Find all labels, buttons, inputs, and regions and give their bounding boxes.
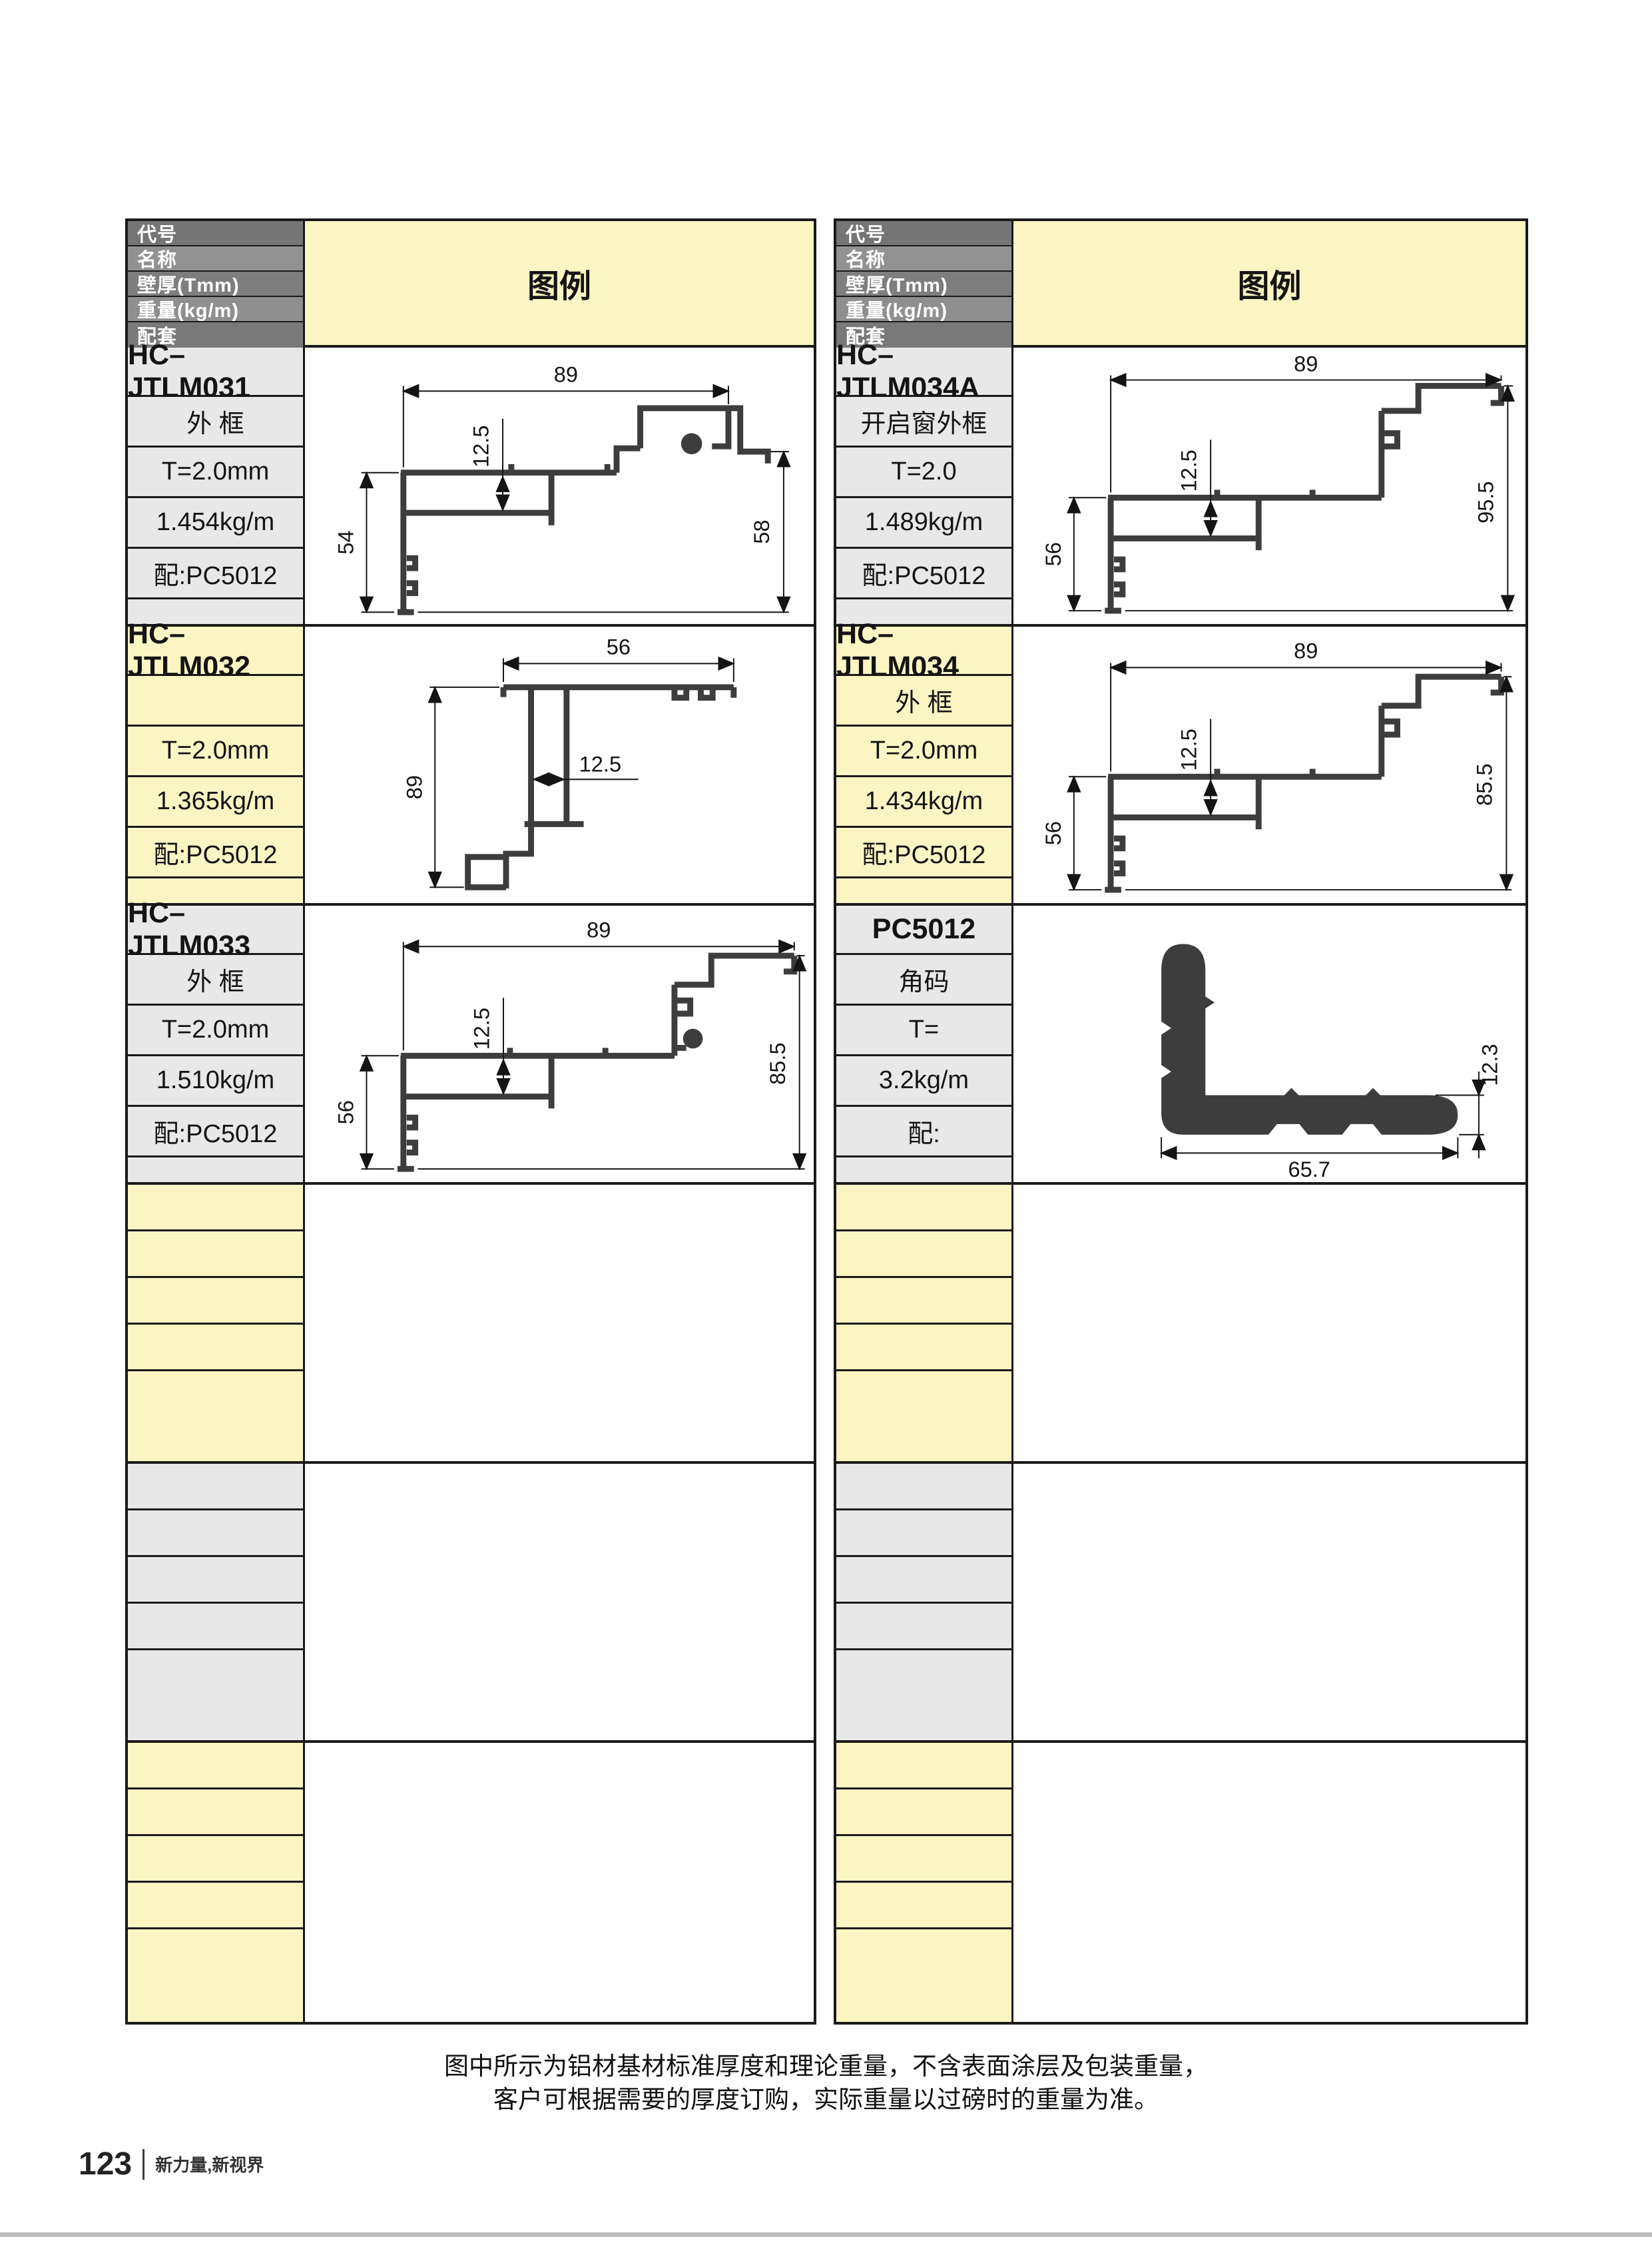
header-label-column: 代号 名称 壁厚(Tmm) 重量(kg/m) 配套 — [128, 221, 305, 345]
product-name — [128, 676, 303, 727]
product-thickness: T=2.0 — [836, 448, 1011, 498]
dim-left-label: 54 — [334, 530, 358, 554]
figure-cell-empty — [1013, 1185, 1525, 1461]
product-code: HC–JTLM032 — [128, 627, 303, 676]
empty-block — [836, 1743, 1525, 2022]
header-label-thickness: 壁厚(Tmm) — [128, 272, 303, 297]
footer-slogan: 新力量,新视界 — [155, 2152, 264, 2176]
header-label-name: 名称 — [128, 246, 303, 272]
dim-left-label: 56 — [1041, 542, 1065, 566]
table-header-left: 代号 名称 壁厚(Tmm) 重量(kg/m) 配套 图例 — [128, 221, 814, 348]
empty-block — [836, 1464, 1525, 1743]
figure-cell: 89 12.5 56 95.5 — [1013, 348, 1525, 624]
product-thickness: T=2.0mm — [128, 727, 303, 777]
legend-title: 图例 — [305, 221, 814, 345]
dim-right-label: 58 — [749, 520, 774, 544]
product-thickness: T=2.0mm — [128, 448, 303, 498]
legend-header-cell: 图例 — [1013, 221, 1525, 345]
product-labels: HC–JTLM033 外 框 T=2.0mm 1.510kg/m 配:PC501… — [128, 906, 305, 1182]
product-code: PC5012 — [836, 906, 1011, 955]
product-thickness: T=2.0mm — [128, 1006, 303, 1056]
product-label-filler — [836, 878, 1011, 903]
product-weight: 1.454kg/m — [128, 498, 303, 549]
empty-block — [128, 1743, 814, 2022]
product-code: HC–JTLM031 — [128, 348, 303, 397]
table-header-right: 代号 名称 壁厚(Tmm) 重量(kg/m) 配套 图例 — [836, 221, 1525, 348]
product-accessory: 配:PC5012 — [128, 828, 303, 878]
legend-header-cell: 图例 — [305, 221, 814, 345]
product-code: HC–JTLM034A — [836, 348, 1011, 397]
header-label-column: 代号 名称 壁厚(Tmm) 重量(kg/m) 配套 — [836, 221, 1013, 345]
legend-title: 图例 — [1013, 221, 1525, 345]
product-thickness: T=2.0mm — [836, 727, 1011, 777]
technical-drawing-jtlm031: 89 12.5 54 58 — [305, 348, 814, 624]
header-label-weight: 重量(kg/m) — [836, 297, 1011, 322]
product-block-jtlm034: HC–JTLM034 外 框 T=2.0mm 1.434kg/m 配:PC501… — [836, 627, 1525, 906]
empty-labels — [836, 1743, 1013, 2022]
empty-labels — [128, 1743, 305, 2022]
technical-drawing-pc5012: 65.7 12.3 — [1013, 906, 1525, 1182]
figure-cell: 65.7 12.3 — [1013, 906, 1525, 1182]
dim-right-label: 95.5 — [1474, 481, 1498, 523]
header-label-code: 代号 — [836, 221, 1011, 246]
dim-top-label: 89 — [587, 917, 611, 942]
dim-right-label: 85.5 — [765, 1042, 790, 1084]
product-block-jtlm034a: HC–JTLM034A 开启窗外框 T=2.0 1.489kg/m 配:PC50… — [836, 348, 1525, 627]
product-block-jtlm031: HC–JTLM031 外 框 T=2.0mm 1.454kg/m 配:PC501… — [128, 348, 814, 627]
product-accessory: 配:PC5012 — [128, 549, 303, 599]
product-name: 外 框 — [128, 955, 303, 1006]
figure-cell: 89 12.5 56 85.5 — [1013, 627, 1525, 903]
product-code: HC–JTLM034 — [836, 627, 1011, 676]
empty-labels — [836, 1464, 1013, 1740]
empty-block — [836, 1185, 1525, 1464]
header-label-thickness: 壁厚(Tmm) — [836, 272, 1011, 297]
product-block-pc5012: PC5012 角码 T= 3.2kg/m 配: — [836, 906, 1525, 1185]
dim-left-label: 89 — [402, 775, 426, 799]
product-accessory: 配: — [836, 1107, 1011, 1157]
dim-left-label: 56 — [334, 1100, 358, 1124]
product-accessory: 配:PC5012 — [128, 1107, 303, 1157]
product-name: 外 框 — [128, 397, 303, 448]
empty-labels — [836, 1185, 1013, 1461]
figure-cell-empty — [305, 1743, 814, 2022]
dim-right-label: 12.3 — [1478, 1044, 1502, 1086]
dim-top-label: 89 — [1294, 639, 1318, 663]
empty-labels — [128, 1464, 305, 1740]
figure-cell-empty — [1013, 1743, 1525, 2022]
technical-drawing-jtlm034: 89 12.5 56 85.5 — [1013, 627, 1525, 903]
product-name: 外 框 — [836, 676, 1011, 727]
figure-cell-empty — [305, 1185, 814, 1461]
profile-table-right: 代号 名称 壁厚(Tmm) 重量(kg/m) 配套 图例 HC–JTLM034A… — [834, 218, 1528, 2025]
dim-inner-label: 12.5 — [579, 751, 621, 776]
dim-right-label: 85.5 — [1473, 763, 1497, 805]
figure-cell: 89 12.5 56 85.5 — [305, 906, 814, 1182]
bottom-edge-bar — [0, 2232, 1652, 2237]
header-label-name: 名称 — [836, 246, 1011, 272]
footer-note-line1: 图中所示为铝材基材标准厚度和理论重量，不含表面涂层及包装重量， — [0, 2046, 1652, 2082]
product-accessory: 配:PC5012 — [836, 549, 1011, 599]
empty-labels — [128, 1185, 305, 1461]
product-label-filler — [128, 1157, 303, 1182]
product-label-filler — [836, 1157, 1011, 1182]
dim-inner-label: 12.5 — [1177, 729, 1201, 771]
product-labels: HC–JTLM032 T=2.0mm 1.365kg/m 配:PC5012 — [128, 627, 305, 903]
product-code: HC–JTLM033 — [128, 906, 303, 955]
page-footer: 123 新力量,新视界 — [79, 2146, 264, 2182]
header-label-code: 代号 — [128, 221, 303, 246]
dim-top-label: 56 — [607, 635, 631, 659]
product-weight: 1.510kg/m — [128, 1056, 303, 1107]
catalog-page: 代号 名称 壁厚(Tmm) 重量(kg/m) 配套 图例 HC–JTLM031 … — [0, 0, 1652, 2241]
dim-left-label: 56 — [1041, 821, 1065, 845]
product-block-jtlm033: HC–JTLM033 外 框 T=2.0mm 1.510kg/m 配:PC501… — [128, 906, 814, 1185]
page-number: 123 — [79, 2146, 132, 2182]
product-thickness: T= — [836, 1006, 1011, 1056]
empty-block — [128, 1185, 814, 1464]
product-accessory: 配:PC5012 — [836, 828, 1011, 878]
product-weight: 3.2kg/m — [836, 1056, 1011, 1107]
product-labels: PC5012 角码 T= 3.2kg/m 配: — [836, 906, 1013, 1182]
dim-top-label: 89 — [554, 362, 578, 386]
product-labels: HC–JTLM034 外 框 T=2.0mm 1.434kg/m 配:PC501… — [836, 627, 1013, 903]
profile-table-left: 代号 名称 壁厚(Tmm) 重量(kg/m) 配套 图例 HC–JTLM031 … — [125, 218, 816, 2025]
product-labels: HC–JTLM031 外 框 T=2.0mm 1.454kg/m 配:PC501… — [128, 348, 305, 624]
technical-drawing-jtlm032: 56 89 12.5 — [305, 627, 814, 903]
footer-divider — [142, 2149, 144, 2180]
dim-inner-label: 12.5 — [469, 1008, 493, 1050]
dim-inner-label: 12.5 — [1177, 450, 1201, 491]
product-weight: 1.489kg/m — [836, 498, 1011, 549]
empty-block — [128, 1464, 814, 1743]
product-name: 开启窗外框 — [836, 397, 1011, 448]
product-weight: 1.365kg/m — [128, 777, 303, 828]
figure-cell-empty — [1013, 1464, 1525, 1740]
figure-cell-empty — [305, 1464, 814, 1740]
product-weight: 1.434kg/m — [836, 777, 1011, 828]
product-labels: HC–JTLM034A 开启窗外框 T=2.0 1.489kg/m 配:PC50… — [836, 348, 1013, 624]
dim-inner-label: 12.5 — [468, 425, 493, 467]
technical-drawing-jtlm034a: 89 12.5 56 95.5 — [1013, 348, 1525, 624]
header-label-weight: 重量(kg/m) — [128, 297, 303, 322]
footer-note-line2: 客户可根据需要的厚度订购，实际重量以过磅时的重量为准。 — [0, 2079, 1652, 2115]
product-block-jtlm032: HC–JTLM032 T=2.0mm 1.365kg/m 配:PC5012 — [128, 627, 814, 906]
dim-top-label: 89 — [1294, 352, 1318, 376]
dim-bottom-label: 65.7 — [1288, 1157, 1330, 1181]
technical-drawing-jtlm033: 89 12.5 56 85.5 — [305, 906, 814, 1182]
figure-cell: 56 89 12.5 — [305, 627, 814, 903]
figure-cell: 89 12.5 54 58 — [305, 348, 814, 624]
product-name: 角码 — [836, 955, 1011, 1006]
